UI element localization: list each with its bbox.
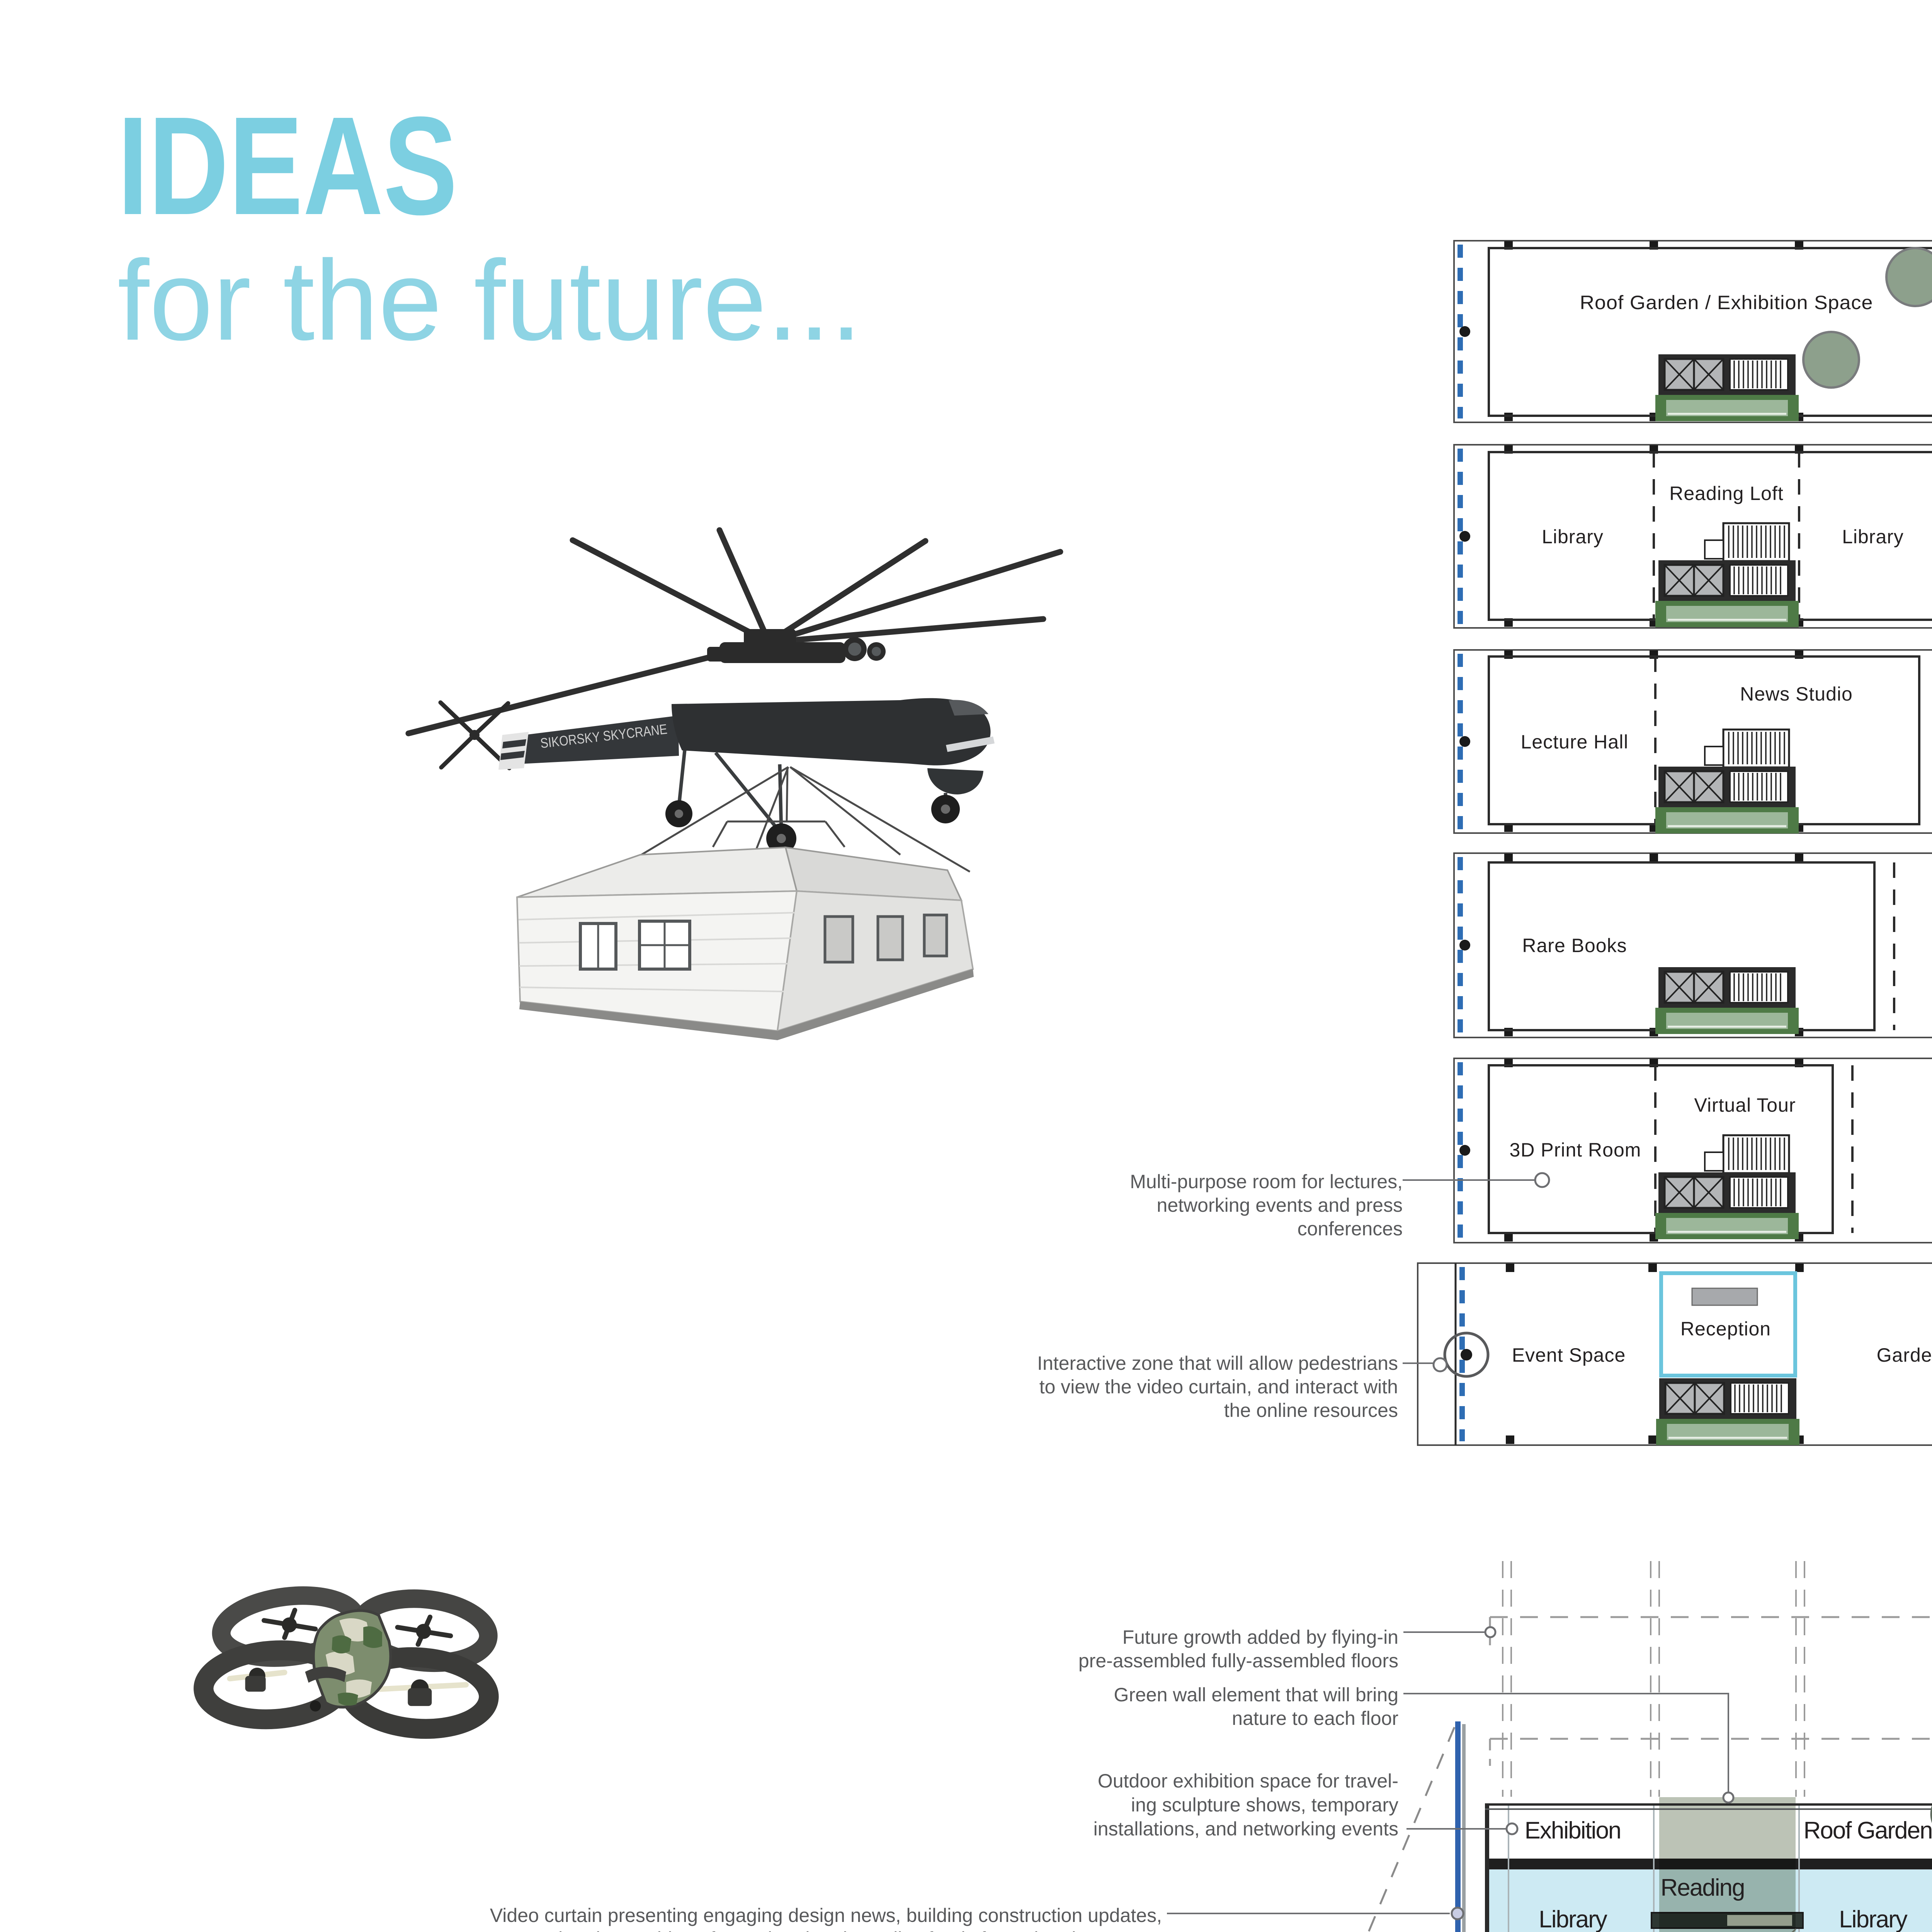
svg-text:IDEAS: IDEAS (117, 87, 457, 244)
svg-text:Library: Library (1542, 526, 1604, 548)
svg-text:for the future...: for the future... (117, 236, 862, 364)
svg-text:Interactive zone that will all: Interactive zone that will allow pedestr… (1037, 1352, 1398, 1374)
svg-text:conferences: conferences (1298, 1218, 1403, 1240)
svg-text:Event Space: Event Space (1512, 1344, 1626, 1366)
svg-text:Outdoor exhibition space for t: Outdoor exhibition space for travel- (1098, 1770, 1398, 1792)
svg-text:Rare Books: Rare Books (1522, 935, 1627, 956)
svg-text:Roof Garden: Roof Garden (1804, 1817, 1932, 1844)
svg-text:Reception: Reception (1680, 1318, 1771, 1340)
svg-text:Reading Loft: Reading Loft (1669, 483, 1784, 504)
svg-text:News Studio: News Studio (1740, 683, 1853, 705)
svg-text:to view the video curtain, and: to view the video curtain, and interact … (1039, 1376, 1398, 1398)
svg-text:Green wall element that will b: Green wall element that will bring (1114, 1684, 1398, 1706)
svg-text:Lecture Hall: Lecture Hall (1521, 731, 1629, 753)
svg-text:the online resources: the online resources (1224, 1400, 1398, 1421)
svg-text:Library: Library (1842, 526, 1904, 548)
svg-text:pre-assembled fully-assembled: pre-assembled fully-assembled floors (1078, 1650, 1398, 1672)
svg-text:installations, and networking: installations, and networking events (1094, 1818, 1398, 1840)
svg-text:Video curtain presenting engag: Video curtain presenting engaging design… (490, 1905, 1162, 1926)
svg-text:Library: Library (1539, 1906, 1607, 1932)
svg-text:3D Print Room: 3D Print Room (1510, 1139, 1641, 1161)
svg-text:Multi-purpose room for lecture: Multi-purpose room for lectures, (1130, 1171, 1403, 1192)
svg-text:Reading: Reading (1661, 1874, 1745, 1901)
svg-text:Exhibition: Exhibition (1525, 1817, 1621, 1844)
svg-text:Garden: Garden (1877, 1344, 1932, 1366)
svg-text:Future growth added by flying-: Future growth added by flying-in (1122, 1626, 1398, 1648)
svg-text:nature to each floor: nature to each floor (1232, 1708, 1398, 1729)
svg-text:Library: Library (1839, 1906, 1908, 1932)
svg-text:time-lapse video of completed: time-lapse video of completed projects, … (553, 1928, 1162, 1932)
svg-text:Roof Garden / Exhibition Space: Roof Garden / Exhibition Space (1580, 292, 1873, 313)
svg-text:ing sculpture shows, temporary: ing sculpture shows, temporary (1131, 1794, 1398, 1816)
svg-text:Virtual Tour: Virtual Tour (1694, 1094, 1796, 1116)
svg-text:networking events and press: networking events and press (1157, 1194, 1403, 1216)
